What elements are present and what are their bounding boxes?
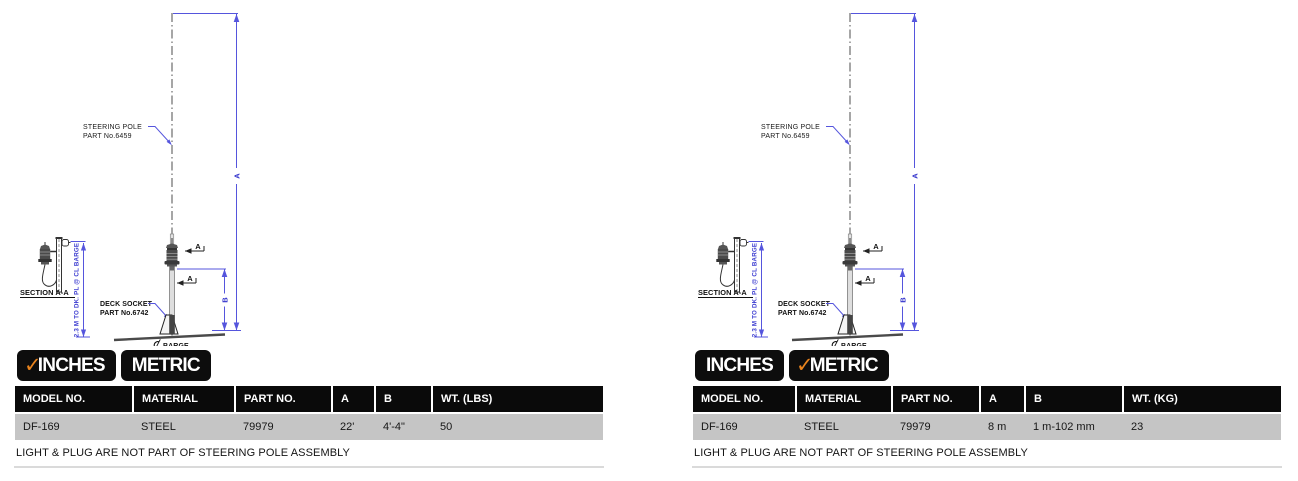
plug-icon xyxy=(62,240,71,247)
steering-pole-drawing: A B xyxy=(14,0,604,346)
barge-label: BARGE xyxy=(163,343,189,346)
spec-table-header-row: MODEL NO. MATERIAL PART NO. A B WT. (KG) xyxy=(693,386,1281,413)
section-label: SECTION A-A xyxy=(698,288,747,297)
section-cut-marker-upper: A xyxy=(185,242,204,254)
deck-socket-part-no: PART No.6742 xyxy=(778,310,827,317)
assembly-note: LIGHT & PLUG ARE NOT PART OF STEERING PO… xyxy=(694,447,1028,459)
col-a: A xyxy=(332,386,375,413)
col-part-no: PART NO. xyxy=(235,386,332,413)
section-light-icon xyxy=(716,242,734,265)
vertical-dimension: 2.3 M TO DK. PL @ CL BARGE xyxy=(749,242,769,338)
cell-weight: 23 xyxy=(1123,413,1281,440)
section-cut-a-label: A xyxy=(187,274,193,283)
check-icon: ✓ xyxy=(796,353,813,377)
cable-loop xyxy=(42,265,56,287)
cell-a: 8 m xyxy=(980,413,1025,440)
col-weight: WT. (LBS) xyxy=(432,386,603,413)
bottom-divider xyxy=(692,466,1282,468)
dim-b-label: B xyxy=(221,297,230,303)
table-row: DF-169 STEEL 79979 8 m 1 m-102 mm 23 xyxy=(693,413,1281,440)
vertical-dim-label: 2.3 M TO DK. PL @ CL BARGE xyxy=(752,243,759,337)
navigation-light-icon xyxy=(165,238,180,271)
page: A B xyxy=(0,0,1298,481)
deck-socket xyxy=(838,315,856,334)
deck-socket-part-no: PART No.6742 xyxy=(100,310,149,317)
cell-weight: 50 xyxy=(432,413,603,440)
unit-tabs: ✓ INCHES ✓ METRIC xyxy=(695,350,889,381)
col-a: A xyxy=(980,386,1025,413)
col-material: MATERIAL xyxy=(133,386,235,413)
cell-b: 1 m-102 mm xyxy=(1025,413,1123,440)
section-cut-a-label: A xyxy=(865,274,871,283)
section-cut-marker-lower: A xyxy=(177,274,196,286)
steering-pole-drawing: A B xyxy=(692,0,1282,346)
cell-material: STEEL xyxy=(133,413,235,440)
barge-centerline-label: BARGE xyxy=(832,339,867,346)
steering-pole-label: STEERING POLE xyxy=(761,124,820,131)
cell-model-no: DF-169 xyxy=(693,413,796,440)
steering-pole-part-no: PART No.6459 xyxy=(83,133,132,140)
deck-socket-callout: DECK SOCKET PART No.6742 xyxy=(100,301,169,320)
tab-inches-label: INCHES xyxy=(706,355,773,377)
panel-metric: A B xyxy=(692,0,1282,481)
panel-inches: A B xyxy=(14,0,604,481)
cable-loop xyxy=(720,265,734,287)
navigation-light-icon xyxy=(843,238,858,271)
tab-metric[interactable]: ✓ METRIC xyxy=(789,350,889,381)
plug-icon xyxy=(740,240,749,247)
barge-deck xyxy=(114,335,225,341)
col-weight: WT. (KG) xyxy=(1123,386,1281,413)
section-a-a-view: SECTION A-A xyxy=(698,237,753,298)
section-a-a-view: SECTION A-A xyxy=(20,237,75,298)
col-model-no: MODEL NO. xyxy=(693,386,796,413)
cell-part-no: 79979 xyxy=(892,413,980,440)
col-b: B xyxy=(375,386,432,413)
steering-pole-callout: STEERING POLE PART No.6459 xyxy=(83,124,172,145)
steering-pole-part-no: PART No.6459 xyxy=(761,133,810,140)
steering-pole-label: STEERING POLE xyxy=(83,124,142,131)
deck-socket xyxy=(160,315,178,334)
barge-centerline-label: BARGE xyxy=(154,339,189,346)
assembly-note: LIGHT & PLUG ARE NOT PART OF STEERING PO… xyxy=(16,447,350,459)
dim-a-label: A xyxy=(911,173,920,179)
section-cut-marker-upper: A xyxy=(863,242,882,254)
section-cut-marker-lower: A xyxy=(855,274,874,286)
section-cut-a-label: A xyxy=(873,242,879,251)
cell-part-no: 79979 xyxy=(235,413,332,440)
unit-tabs: ✓ INCHES ✓ METRIC xyxy=(17,350,211,381)
dim-b-label: B xyxy=(899,297,908,303)
tab-metric-label: METRIC xyxy=(132,355,200,377)
steering-pole xyxy=(848,13,853,336)
tab-metric[interactable]: ✓ METRIC xyxy=(121,350,211,381)
section-label: SECTION A-A xyxy=(20,288,69,297)
cell-model-no: DF-169 xyxy=(15,413,133,440)
barge-label: BARGE xyxy=(841,343,867,346)
tab-inches[interactable]: ✓ INCHES xyxy=(695,350,784,381)
dim-a-label: A xyxy=(233,173,242,179)
spec-table: MODEL NO. MATERIAL PART NO. A B WT. (LBS… xyxy=(15,386,603,440)
col-model-no: MODEL NO. xyxy=(15,386,133,413)
deck-socket-label: DECK SOCKET xyxy=(778,301,831,308)
cell-material: STEEL xyxy=(796,413,892,440)
deck-socket-callout: DECK SOCKET PART No.6742 xyxy=(778,301,847,320)
tab-metric-label: METRIC xyxy=(810,355,878,377)
col-material: MATERIAL xyxy=(796,386,892,413)
section-cut-a-label: A xyxy=(195,242,201,251)
col-part-no: PART NO. xyxy=(892,386,980,413)
deck-socket-label: DECK SOCKET xyxy=(100,301,153,308)
cell-b: 4'-4" xyxy=(375,413,432,440)
vertical-dim-label: 2.3 M TO DK. PL @ CL BARGE xyxy=(74,243,81,337)
cell-a: 22' xyxy=(332,413,375,440)
centerline-symbol-icon xyxy=(154,339,160,346)
check-icon: ✓ xyxy=(24,353,41,377)
barge-deck xyxy=(792,335,903,341)
section-light-icon xyxy=(38,242,56,265)
tab-inches-label: INCHES xyxy=(38,355,105,377)
steering-pole xyxy=(170,13,175,336)
col-b: B xyxy=(1025,386,1123,413)
steering-pole-callout: STEERING POLE PART No.6459 xyxy=(761,124,850,145)
table-row: DF-169 STEEL 79979 22' 4'-4" 50 xyxy=(15,413,603,440)
bottom-divider xyxy=(14,466,604,468)
spec-table-header-row: MODEL NO. MATERIAL PART NO. A B WT. (LBS… xyxy=(15,386,603,413)
spec-table: MODEL NO. MATERIAL PART NO. A B WT. (KG)… xyxy=(693,386,1281,440)
centerline-symbol-icon xyxy=(832,339,838,346)
vertical-dimension: 2.3 M TO DK. PL @ CL BARGE xyxy=(71,242,91,338)
tab-inches[interactable]: ✓ INCHES xyxy=(17,350,116,381)
